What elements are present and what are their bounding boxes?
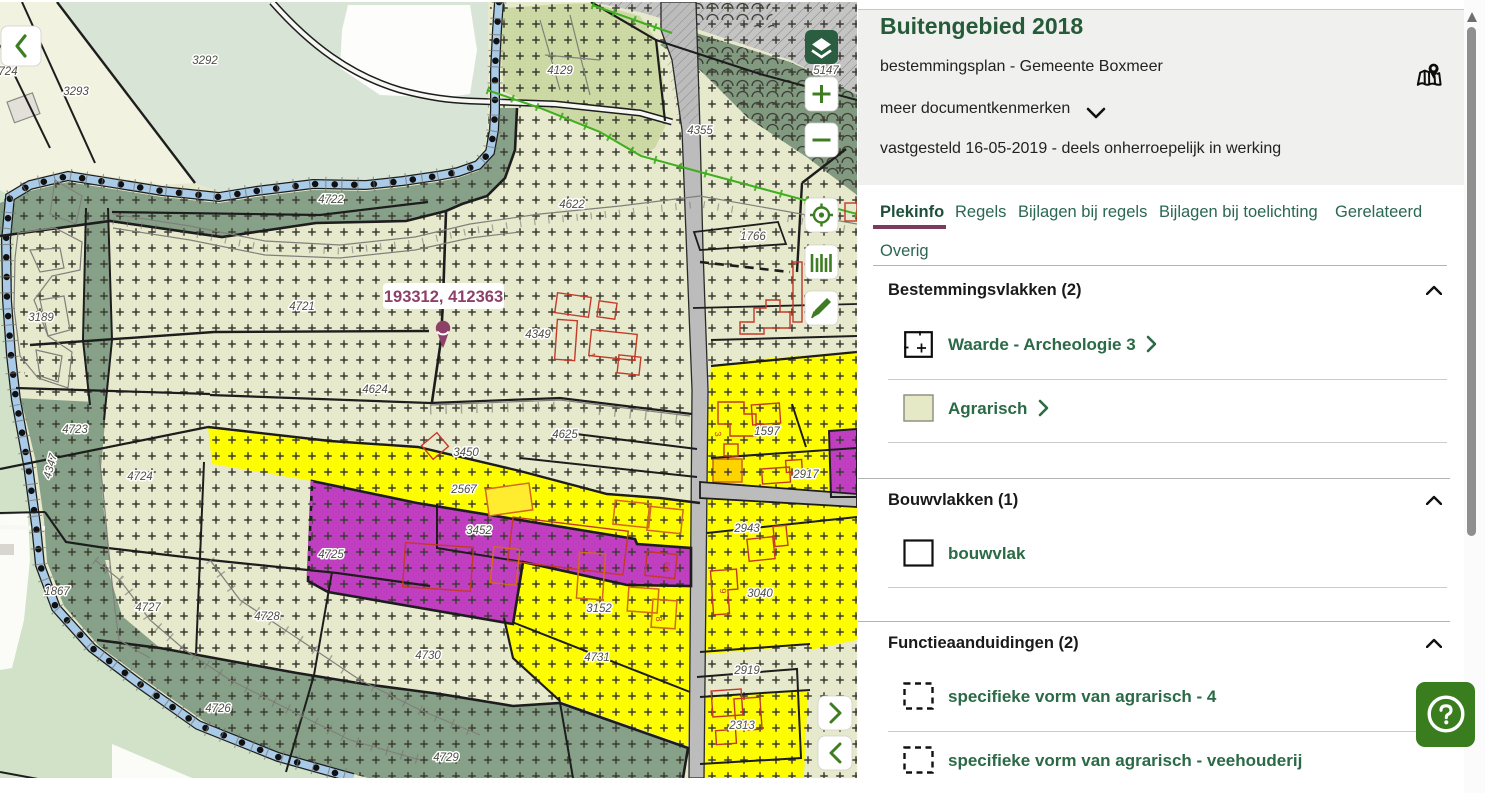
svg-text:4129: 4129 [547,65,573,77]
svg-text:4728: 4728 [254,611,280,623]
svg-text:4349: 4349 [525,329,551,341]
svg-text:3292: 3292 [192,55,218,67]
svg-text:9: 9 [718,588,728,594]
svg-text:2917: 2917 [792,469,819,481]
svg-text:4724: 4724 [127,471,153,483]
svg-text:4731: 4731 [584,652,610,664]
svg-text:4624: 4624 [362,384,388,396]
svg-text:2313: 2313 [728,720,755,732]
svg-text:5147: 5147 [813,65,839,77]
svg-text:3293: 3293 [63,86,89,98]
svg-text:3152: 3152 [586,603,612,615]
svg-text:4625: 4625 [552,429,578,441]
svg-text:3189: 3189 [28,312,54,324]
svg-text:8: 8 [654,616,664,622]
svg-text:4729: 4729 [433,752,459,764]
svg-text:4355: 4355 [687,125,713,137]
svg-text:4726: 4726 [205,703,231,715]
svg-text:4721: 4721 [289,301,315,313]
svg-text:1766: 1766 [740,231,766,243]
svg-text:3452: 3452 [466,525,492,537]
svg-text:2919: 2919 [733,665,760,677]
svg-text:3040: 3040 [747,588,773,600]
svg-text:4727: 4727 [135,602,161,614]
svg-text:724: 724 [0,66,18,78]
svg-text:2943: 2943 [733,523,760,535]
svg-text:4722: 4722 [318,194,344,206]
svg-text:4622: 4622 [559,199,585,211]
svg-text:3: 3 [713,431,723,437]
svg-text:3450: 3450 [453,447,479,459]
svg-text:1597: 1597 [754,426,780,438]
svg-text:1867: 1867 [44,586,70,598]
svg-text:4730: 4730 [415,650,441,662]
svg-text:193312, 412363: 193312, 412363 [384,288,503,306]
svg-text:2567: 2567 [450,484,477,496]
svg-text:4725: 4725 [318,549,344,561]
svg-text:4723: 4723 [62,424,88,436]
